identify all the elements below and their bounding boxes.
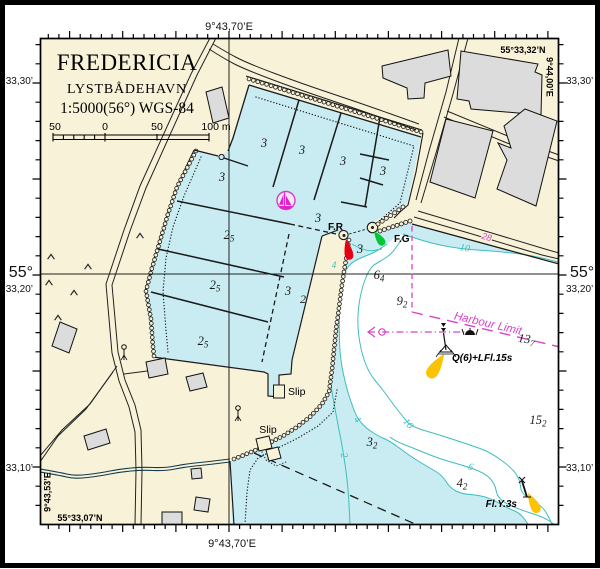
svg-text:LYSTBÅDEHAVN: LYSTBÅDEHAVN: [67, 81, 187, 97]
svg-text:Q(6)+LFl.15s: Q(6)+LFl.15s: [452, 353, 513, 364]
svg-text:55°: 55°: [570, 264, 594, 281]
svg-text:F.G: F.G: [394, 234, 410, 245]
svg-text:33,30’: 33,30’: [6, 76, 33, 87]
svg-text:9°44,00’E: 9°44,00’E: [545, 57, 555, 97]
svg-text:3: 3: [298, 143, 305, 157]
svg-text:50: 50: [151, 121, 163, 133]
svg-text:50: 50: [49, 121, 61, 133]
svg-text:3: 3: [339, 154, 346, 168]
svg-text:9°43,70’E: 9°43,70’E: [205, 21, 253, 33]
svg-text:1:5000(56°) WGS-84: 1:5000(56°) WGS-84: [60, 100, 194, 117]
svg-text:3: 3: [218, 170, 225, 184]
svg-text:9°43,53’E: 9°43,53’E: [42, 472, 52, 512]
svg-text:4: 4: [332, 260, 337, 270]
svg-text:9°43,70’E: 9°43,70’E: [208, 538, 256, 550]
svg-text:3: 3: [314, 211, 321, 225]
svg-text:55°: 55°: [9, 264, 33, 281]
svg-text:Slip: Slip: [288, 386, 306, 398]
svg-text:Slip: Slip: [259, 424, 277, 436]
svg-text:33,10’: 33,10’: [6, 463, 33, 474]
svg-text:100 m: 100 m: [201, 121, 230, 133]
svg-text:33,20’: 33,20’: [6, 284, 33, 295]
svg-text:55°33,07’N: 55°33,07’N: [57, 513, 102, 523]
svg-text:33,20’: 33,20’: [566, 284, 593, 295]
svg-text:55°33,32’N: 55°33,32’N: [500, 45, 545, 55]
svg-text:0: 0: [102, 121, 108, 133]
svg-text:3: 3: [379, 164, 386, 178]
svg-text:2: 2: [300, 292, 306, 306]
svg-text:3: 3: [356, 242, 363, 256]
svg-text:3: 3: [260, 136, 267, 150]
svg-text:33,30’: 33,30’: [566, 76, 593, 87]
svg-text:10: 10: [459, 242, 470, 254]
svg-text:F.R: F.R: [328, 222, 344, 233]
svg-text:FREDERICIA: FREDERICIA: [57, 50, 197, 75]
svg-text:33,10’: 33,10’: [566, 463, 593, 474]
svg-text:Fl.Y.3s: Fl.Y.3s: [486, 499, 518, 510]
svg-text:3: 3: [284, 284, 291, 298]
